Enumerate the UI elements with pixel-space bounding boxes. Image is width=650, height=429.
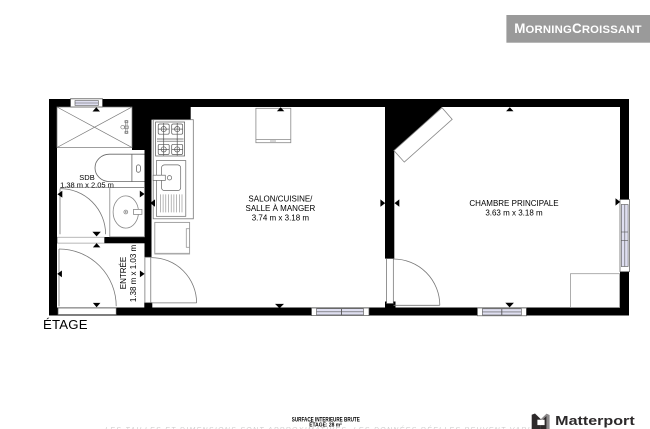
svg-text:1.38 m x 2.05 m: 1.38 m x 2.05 m xyxy=(60,180,114,189)
svg-text:Matterport: Matterport xyxy=(555,414,636,428)
svg-text:3.63 m x 3.18 m: 3.63 m x 3.18 m xyxy=(485,208,543,217)
svg-text:ENTRÉE: ENTRÉE xyxy=(119,257,128,289)
svg-text:CHAMBRE PRINCIPALE: CHAMBRE PRINCIPALE xyxy=(469,199,558,208)
svg-text:ÉTAGE: ÉTAGE xyxy=(43,317,88,332)
svg-text:MORNINGCROISSANT: MORNINGCROISSANT xyxy=(514,21,642,36)
svg-text:3.74 m x 3.18 m: 3.74 m x 3.18 m xyxy=(252,214,310,223)
svg-text:SALON/CUISINE/: SALON/CUISINE/ xyxy=(248,195,313,204)
svg-text:1.38 m x 1.03 m: 1.38 m x 1.03 m xyxy=(129,244,138,302)
svg-text:SALLE À MANGER: SALLE À MANGER xyxy=(245,204,315,213)
